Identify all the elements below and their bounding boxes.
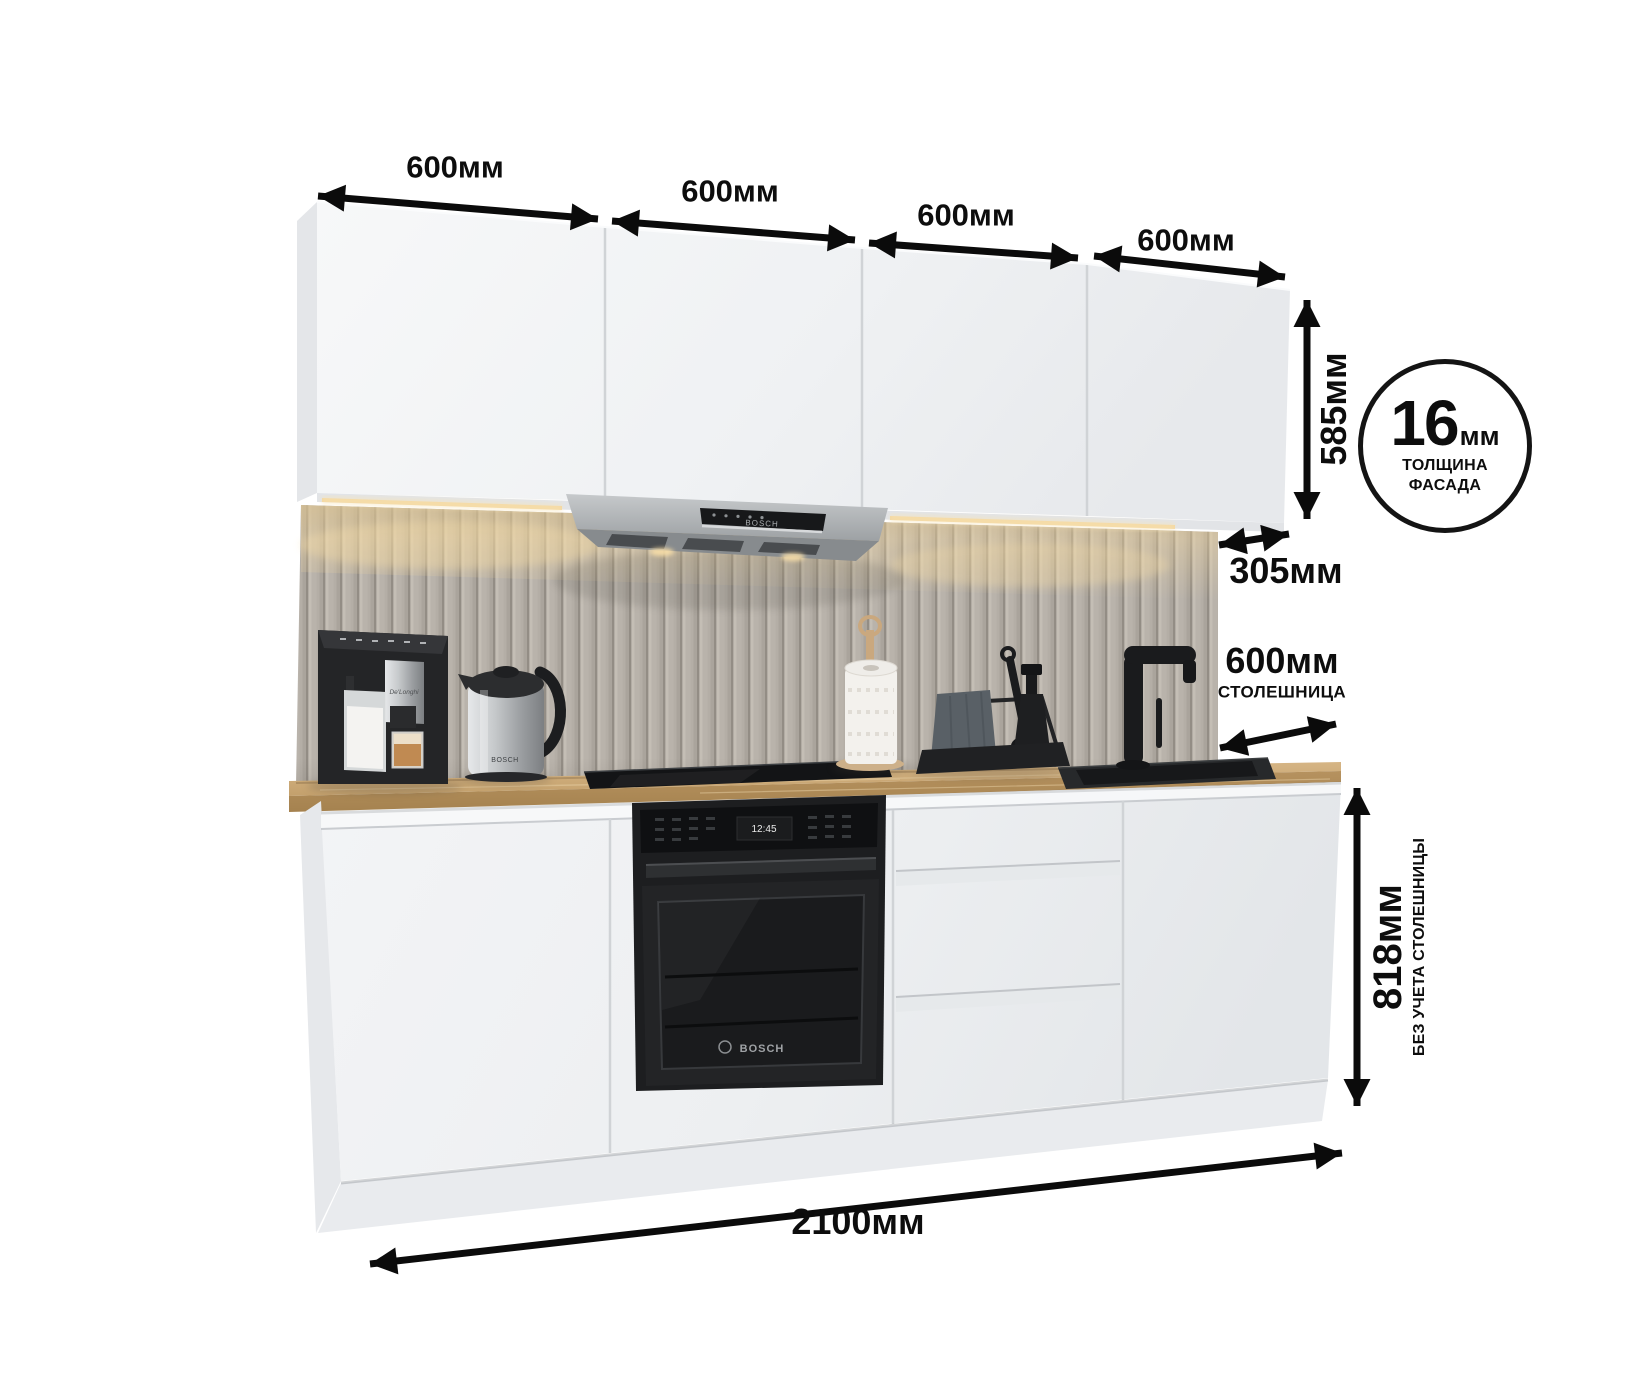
paper-roll-core <box>863 665 879 671</box>
oven-brand-label: BOSCH <box>740 1043 785 1055</box>
coffee-brand-label: De'Longhi <box>389 689 419 696</box>
arrow-upper-depth <box>1219 534 1289 545</box>
hood-lamp-right <box>781 553 805 561</box>
dim-label-upper-width-2: 600мм <box>681 176 779 207</box>
milk-carafe-lid <box>346 676 354 690</box>
badge-value: 16 <box>1390 396 1457 450</box>
dim-label-upper-depth: 305мм <box>1229 553 1342 589</box>
kettle-highlight <box>480 690 488 772</box>
soap-bottle-neck <box>1026 674 1037 694</box>
coffee-machine: De'Longhi <box>318 630 448 784</box>
kitchen-dimension-diagram: BOSCH 12:45 <box>0 0 1632 1400</box>
dim-label-upper-width-4: 600мм <box>1137 225 1235 256</box>
coffee-spout <box>390 706 416 728</box>
led-glow-spot-left <box>300 521 600 569</box>
badge-unit: мм <box>1460 425 1500 448</box>
dim-label-base-height-note: БЕЗ УЧЕТА СТОЛЕШНИЦЫ <box>1412 838 1428 1056</box>
faucet-lever <box>1156 698 1162 748</box>
faucet-riser <box>1124 655 1143 765</box>
kettle-knob <box>493 666 519 678</box>
oven-clock: 12:45 <box>751 824 776 835</box>
led-glow-spot-right <box>890 543 1170 587</box>
built-in-oven: 12:45 BOSCH <box>632 795 886 1091</box>
dim-label-upper-width-1: 600мм <box>406 152 504 183</box>
kettle-base <box>465 772 547 782</box>
hood-lamp-left <box>650 548 674 556</box>
faucet-spout-tip <box>1183 660 1196 683</box>
facade-thickness-badge: 16 мм ТОЛЩИНА ФАСАДА <box>1358 359 1532 533</box>
dim-label-upper-height: 585мм <box>1316 352 1352 465</box>
soap-pump-cap <box>1021 664 1042 675</box>
upper-cabinet-side-panel <box>297 202 317 502</box>
dim-label-counter-depth: 600мм <box>1225 643 1338 679</box>
arrow-counter-depth <box>1220 724 1336 748</box>
dim-label-total-length: 2100мм <box>791 1204 924 1240</box>
paper-roll <box>845 668 897 764</box>
badge-note-line-1: ТОЛЩИНА <box>1402 456 1488 476</box>
milk-level <box>347 706 383 769</box>
dim-label-base-height: 818мм БЕЗ УЧЕТА СТОЛЕШНИЦЫ <box>1368 838 1428 1056</box>
latte-foam-layer <box>394 734 421 744</box>
dim-label-upper-width-3: 600мм <box>917 200 1015 231</box>
kettle-brand-label: BOSCH <box>491 757 518 764</box>
dim-label-counter-depth-note: СТОЛЕШНИЦА <box>1218 684 1346 701</box>
dim-label-base-height-value: 818мм <box>1368 838 1408 1056</box>
kitchen-scene: BOSCH 12:45 <box>0 0 1632 1400</box>
badge-value-row: 16 мм <box>1390 396 1499 450</box>
faucet-base <box>1116 760 1150 770</box>
hood-brand-label: BOSCH <box>745 518 779 528</box>
latte-coffee-layer <box>394 744 421 766</box>
badge-note-line-2: ФАСАДА <box>1409 476 1481 496</box>
